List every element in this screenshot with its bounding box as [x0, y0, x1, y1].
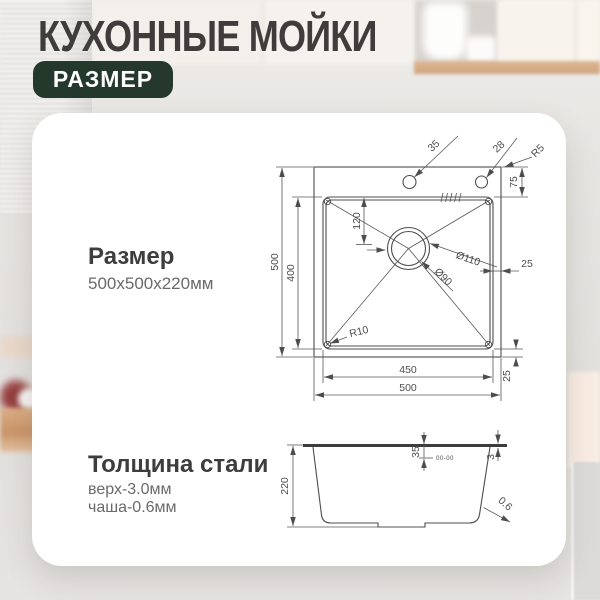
product-infographic: КУХОННЫЕ МОЙКИ РАЗМЕР Размер 500x500x220…	[0, 0, 600, 600]
svg-text:0.6: 0.6	[496, 495, 515, 514]
dim-bowl-depth: 400	[285, 197, 322, 349]
bowl-corner-marks	[324, 198, 491, 347]
svg-text:120: 120	[351, 212, 363, 230]
bowl-section	[313, 447, 490, 527]
leader-drain-inner: Ø90	[422, 262, 455, 292]
bowl-outer-line	[323, 197, 493, 349]
svg-text:500: 500	[399, 382, 417, 394]
dim-rim-drop: 35	[410, 432, 433, 471]
svg-text:25: 25	[501, 370, 513, 382]
svg-text:Ø110: Ø110	[454, 249, 482, 269]
svg-text:28: 28	[491, 139, 508, 156]
svg-text:Ø90: Ø90	[432, 266, 455, 289]
dim-bottom-margin: 25	[494, 340, 523, 382]
svg-text:3: 3	[485, 454, 497, 460]
dim-bowl-width: 450	[323, 350, 493, 383]
technical-drawing: 500 400 120 75	[0, 0, 600, 600]
stamp-mark: 00-00	[436, 456, 454, 462]
leader-faucet-1: 35	[415, 136, 459, 177]
faucet-hole-small	[476, 176, 488, 188]
sink-side-view: 220 35 00-00 3 0.6	[279, 430, 515, 527]
dim-overall-depth: 500	[269, 167, 313, 357]
leader-faucet-2: 28	[487, 138, 518, 178]
dim-drain-offset: 120	[351, 198, 386, 250]
svg-text:35: 35	[410, 446, 422, 458]
svg-text:220: 220	[279, 477, 291, 495]
dim-height: 220	[279, 445, 420, 527]
svg-text:R10: R10	[348, 324, 370, 340]
svg-text:35: 35	[426, 138, 443, 155]
svg-text:25: 25	[521, 258, 533, 270]
faucet-hole-large	[403, 176, 416, 189]
sink-top-view: 500 400 120 75	[269, 136, 547, 401]
dim-back-ledge: 75	[494, 167, 528, 197]
svg-text:400: 400	[285, 264, 297, 282]
dim-right-margin: 25	[480, 258, 533, 271]
svg-text:450: 450	[399, 364, 417, 376]
leader-wall-thickness: 0.6	[484, 495, 515, 522]
svg-text:75: 75	[508, 176, 520, 188]
svg-text:500: 500	[269, 253, 281, 271]
